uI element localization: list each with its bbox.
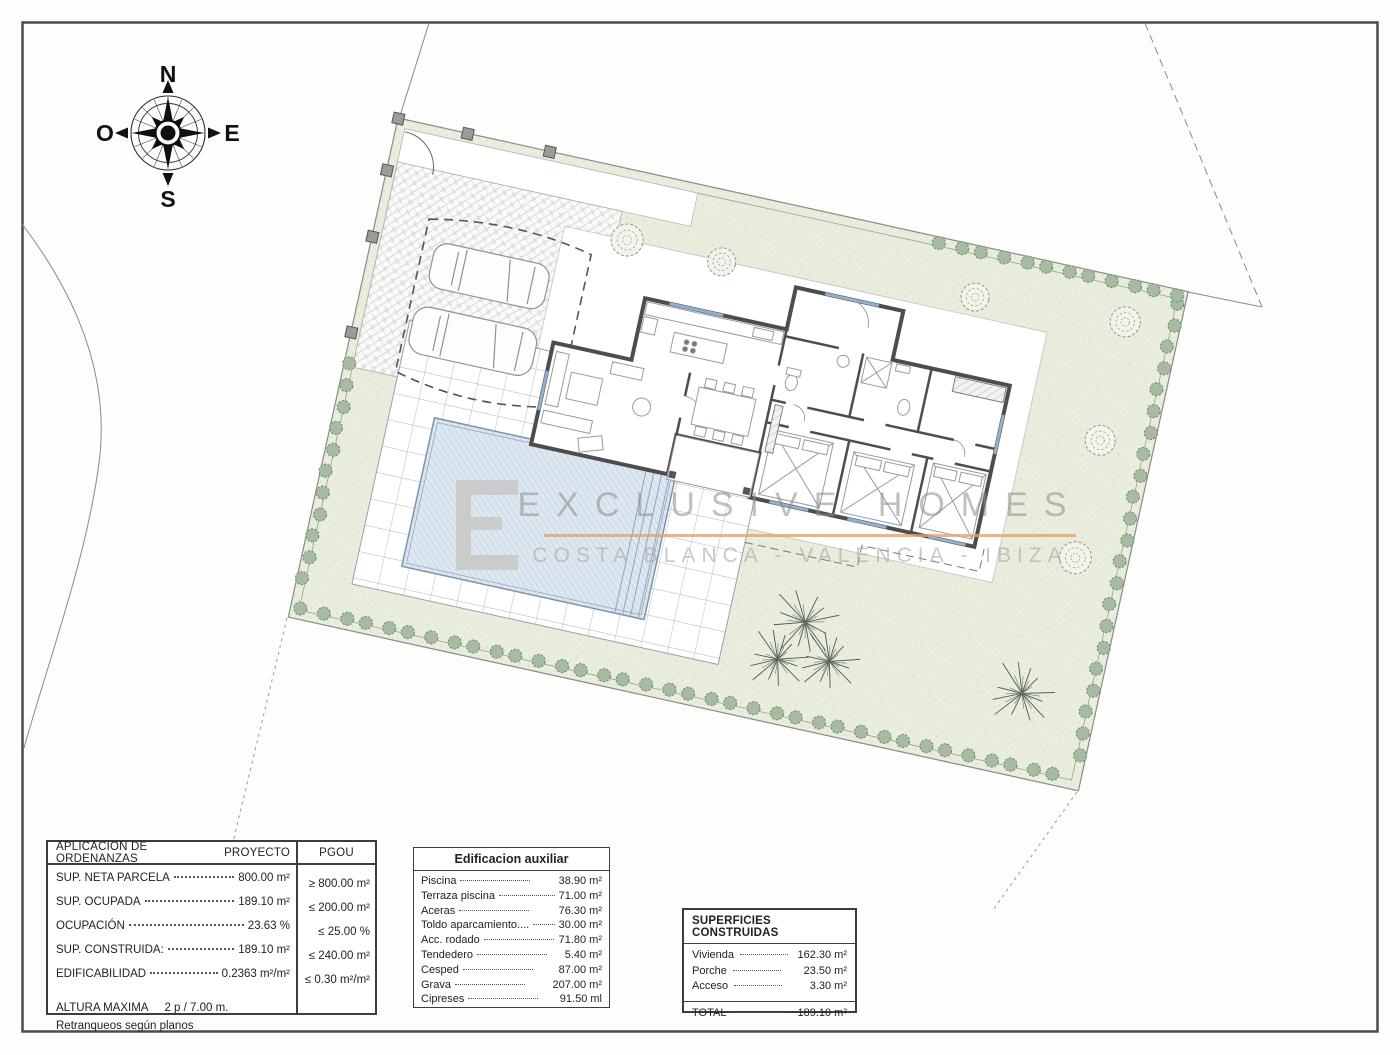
- row-label: Grava: [421, 979, 451, 991]
- row-value: 207.00 m²: [552, 979, 602, 991]
- row-label: Aceras: [421, 905, 455, 917]
- row-label: Toldo aparcamiento....: [421, 919, 529, 931]
- row-label: Tendedero: [421, 949, 473, 961]
- ordenanzas-table: APLICACION DE ORDENANZAS PROYECTO SUP. N…: [46, 840, 377, 1015]
- table-row: Acc. rodado71.80 m²: [421, 934, 602, 949]
- row-value: 189.10 m²: [238, 896, 290, 908]
- total-row: TOTAL 189.10 m²: [684, 1001, 855, 1023]
- ordenanzas-header: APLICACION DE ORDENANZAS PROYECTO: [48, 842, 296, 865]
- row-value: 76.30 m²: [559, 905, 602, 917]
- table-row: EDIFICABILIDAD 0.2363 m²/m²: [48, 968, 296, 992]
- row-value: 5.40 m²: [565, 949, 602, 961]
- row-value: 189.10 m²: [238, 944, 290, 956]
- row-value: 87.00 m²: [559, 964, 602, 976]
- table-row: OCUPACIÓN 23.63 %: [48, 920, 296, 944]
- compass-north-label: N: [160, 61, 177, 87]
- pgou-value: ≤ 200.00 m²: [298, 896, 375, 920]
- row-label: Cipreses: [421, 993, 464, 1005]
- row-label: Terraza piscina: [421, 890, 495, 902]
- row-label: SUP. OCUPADA: [56, 896, 141, 908]
- pgou-value: ≥ 800.00 m²: [298, 872, 375, 896]
- retranqueos-note: Retranqueos según planos: [48, 1014, 296, 1032]
- site-plan-sheet: N S E O EXCLUSIVE HOMES COSTA BLANCA - V…: [0, 0, 1400, 1055]
- table-row: Acceso3.30 m²: [692, 980, 847, 996]
- table-title: SUPERFICIES CONSTRUIDAS: [684, 910, 855, 944]
- shower: [861, 357, 892, 388]
- pgou-value: ≤ 0.30 m²/m²: [298, 968, 375, 992]
- table-row: Terraza piscina71.00 m²: [421, 890, 602, 905]
- row-value: 71.80 m²: [559, 934, 602, 946]
- compass-west-label: O: [96, 120, 114, 146]
- pgou-value: ≤ 240.00 m²: [298, 944, 375, 968]
- superficies-construidas-table: SUPERFICIES CONSTRUIDAS Vivienda162.30 m…: [682, 908, 857, 1013]
- row-value: 23.50 m²: [804, 965, 847, 977]
- table-row: Porche23.50 m²: [692, 965, 847, 981]
- row-label: Piscina: [421, 875, 456, 887]
- pgou-value: ≤ 25.00 %: [298, 920, 375, 944]
- row-value: 3.30 m²: [810, 980, 847, 992]
- row-label: ALTURA MAXIMA: [56, 1002, 148, 1014]
- row-value: 162.30 m²: [797, 949, 847, 961]
- parcel: [283, 112, 1189, 791]
- row-label: SUP. CONSTRUIDA:: [56, 944, 164, 956]
- row-value: 71.00 m²: [559, 890, 602, 902]
- row-value: 2 p / 7.00 m.: [164, 1002, 228, 1014]
- table-row: Piscina38.90 m²: [421, 875, 602, 890]
- row-value: 91.50 ml: [560, 993, 602, 1005]
- table-row: SUP. OCUPADA 189.10 m²: [48, 896, 296, 920]
- col-header: PGOU: [319, 847, 354, 859]
- fridge: [641, 316, 658, 335]
- table-row: Tendedero5.40 m²: [421, 949, 602, 964]
- row-value: 0.2363 m²/m²: [222, 968, 290, 980]
- row-label: OCUPACIÓN: [56, 920, 125, 932]
- table-title: Edificacion auxiliar: [414, 848, 609, 871]
- row-label: Acceso: [692, 980, 728, 992]
- table-row: Aceras76.30 m²: [421, 905, 602, 920]
- col-header: PROYECTO: [224, 847, 290, 859]
- row-label: EDIFICABILIDAD: [56, 968, 146, 980]
- altura-maxima-row: ALTURA MAXIMA 2 p / 7.00 m.: [48, 992, 296, 1014]
- table-row: Grava207.00 m²: [421, 979, 602, 994]
- compass-rose-icon: N S E O: [96, 61, 240, 212]
- row-label: TOTAL: [692, 1007, 726, 1019]
- edificacion-auxiliar-table: Edificacion auxiliar Piscina38.90 m²Terr…: [413, 847, 610, 1008]
- armchair: [578, 436, 603, 452]
- table-row: Vivienda162.30 m²: [692, 949, 847, 965]
- row-value: 189.10 m²: [797, 1007, 847, 1019]
- row-label: Acc. rodado: [421, 934, 480, 946]
- row-label: Porche: [692, 965, 727, 977]
- row-value: 38.90 m²: [559, 875, 602, 887]
- pgou-header: PGOU: [298, 842, 375, 865]
- table-row: Cesped87.00 m²: [421, 964, 602, 979]
- row-value: 30.00 m²: [559, 919, 602, 931]
- row-label: Cesped: [421, 964, 459, 976]
- compass-south-label: S: [160, 186, 175, 212]
- row-value: 23.63 %: [248, 920, 290, 932]
- bed: [841, 452, 915, 526]
- table-row: SUP. CONSTRUIDA: 189.10 m²: [48, 944, 296, 968]
- table-row: SUP. NETA PARCELA 800.00 m²: [48, 872, 296, 896]
- row-label: Vivienda: [692, 949, 734, 961]
- row-value: 800.00 m²: [238, 872, 290, 884]
- table-row: Toldo aparcamiento....30.00 m²: [421, 919, 602, 934]
- row-label: SUP. NETA PARCELA: [56, 872, 170, 884]
- compass-east-label: E: [224, 120, 239, 146]
- col-header: APLICACION DE ORDENANZAS: [56, 841, 224, 865]
- table-row: Cipreses91.50 ml: [421, 993, 602, 1008]
